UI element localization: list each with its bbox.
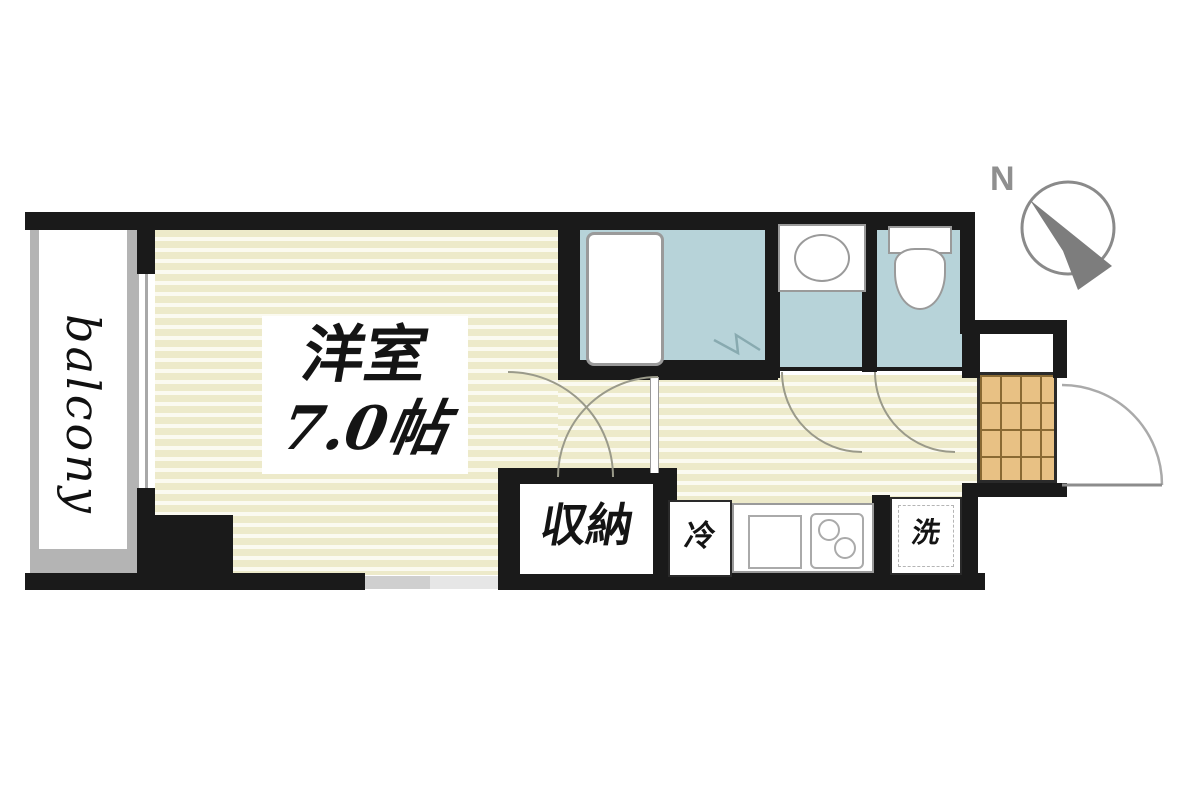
washbasin-vanity (778, 224, 866, 292)
compass-needle-icon (1030, 200, 1112, 290)
wall-bottom-right (498, 573, 985, 590)
wall-closet-left (498, 468, 520, 580)
kitchen-sink (748, 515, 802, 569)
kitchen-stove (810, 513, 864, 569)
compass-circle (1022, 182, 1114, 274)
bathtub (586, 232, 664, 366)
wall-right-lower (962, 483, 978, 585)
refrigerator-label: 冷 (665, 520, 735, 553)
washer-label: 洗 (887, 518, 964, 549)
bottom-window-a (365, 576, 430, 589)
entrance-storage (978, 332, 1056, 376)
stove-burner-icon (818, 519, 840, 541)
wall-room-right (558, 212, 580, 377)
wall-corner-block (147, 515, 233, 578)
threshold-toilet (875, 367, 963, 371)
compass-north-label: N (990, 160, 1015, 199)
wall-storage-right (1053, 332, 1067, 378)
closet-door-leaf (650, 377, 659, 473)
floor-plan: balcony 収納 冷 (0, 0, 1200, 804)
main-room-name: 洋室 (252, 322, 478, 390)
wall-storage-left (962, 320, 980, 378)
wall-kitchen-divider (872, 495, 890, 578)
balcony-label: balcony (56, 270, 110, 560)
entrance-door-arc (1062, 385, 1162, 485)
wall-right-upper (960, 212, 975, 324)
closet-label: 収納 (514, 500, 661, 551)
threshold-washbasin (778, 367, 864, 371)
stove-burner-icon (834, 537, 856, 559)
wall-left-stub-top (137, 212, 155, 274)
main-room-size: 7.0帖 (252, 396, 478, 462)
balcony-window (139, 274, 155, 488)
balcony-window-glass-line (145, 274, 148, 488)
bottom-window-b (430, 576, 498, 589)
washbasin-bowl (794, 234, 850, 282)
entrance-genkan-tile (977, 372, 1057, 483)
